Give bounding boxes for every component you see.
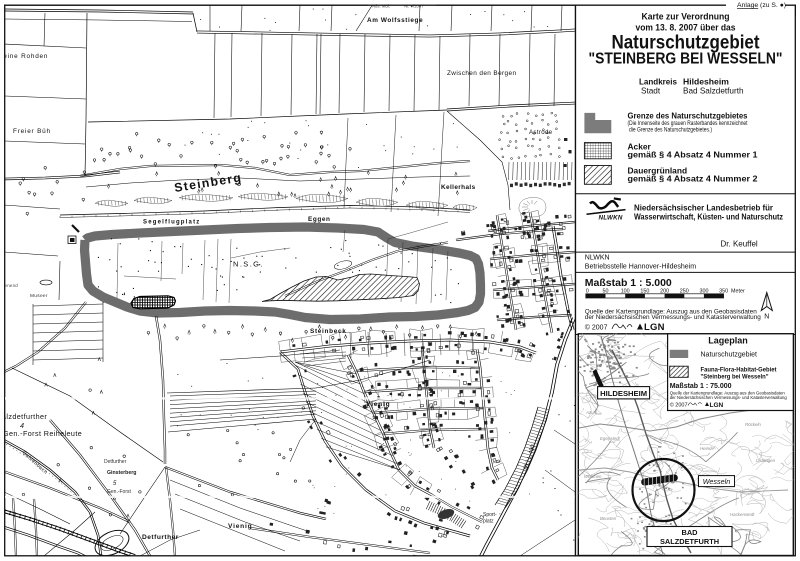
svg-text:Heinde: Heinde (700, 446, 714, 451)
svg-text:Wasserwirtschaft, Küsten- und: Wasserwirtschaft, Küsten- und Naturschut… (634, 211, 783, 221)
svg-text:Listringen: Listringen (756, 458, 776, 463)
svg-text:alzdetfurther: alzdetfurther (2, 412, 47, 421)
svg-text:HILDESHEIM: HILDESHEIM (600, 389, 647, 398)
svg-text:N.S.G.: N.S.G. (233, 260, 264, 269)
svg-text:Segelflugplatz: Segelflugplatz (143, 220, 200, 226)
svg-text:Röckeln: Röckeln (745, 422, 761, 427)
svg-text:Eggen: Eggen (308, 216, 331, 223)
svg-text:Egenstedt: Egenstedt (600, 436, 621, 441)
svg-text:Maßstab 1 : 5.000: Maßstab 1 : 5.000 (585, 277, 672, 289)
svg-text:Freier Büh: Freier Büh (13, 128, 51, 135)
svg-text:Azum: Azum (585, 410, 598, 415)
svg-text:Detfurther: Detfurther (142, 534, 179, 541)
svg-text:"Steinberg bei Wesseln": "Steinberg bei Wesseln" (701, 373, 769, 380)
svg-text:Detfurther: Detfurther (104, 459, 127, 465)
svg-text:platz: platz (483, 519, 494, 525)
svg-text:NLWKN: NLWKN (599, 214, 623, 221)
svg-text:gemäß § 4 Absatz 4 Nummer 2: gemäß § 4 Absatz 4 Nummer 2 (628, 174, 758, 184)
svg-text:BAD: BAD (681, 528, 698, 537)
svg-text:NLWKN: NLWKN (585, 255, 610, 262)
svg-text:Bad Salzdetfurth: Bad Salzdetfurth (683, 87, 744, 96)
svg-text:Nds. MBl.: Nds. MBl. (372, 4, 390, 9)
svg-text:Meter: Meter (731, 288, 745, 294)
svg-text:Karte zur Verordnung: Karte zur Verordnung (642, 12, 730, 22)
svg-text:N: N (764, 314, 769, 321)
svg-text:gemäß § 4 Absatz 4 Nummer 1: gemäß § 4 Absatz 4 Nummer 1 (628, 149, 758, 159)
svg-text:Stadt: Stadt (641, 87, 661, 96)
svg-text:Astrode: Astrode (529, 129, 553, 136)
svg-text:LGN: LGN (644, 322, 665, 333)
svg-text:Steinbeck: Steinbeck (310, 328, 347, 335)
svg-text:Beusten: Beusten (600, 516, 617, 521)
svg-text:Landkreis: Landkreis (639, 76, 677, 86)
svg-text:Grenze des Naturschutzgebietes: Grenze des Naturschutzgebietes (628, 110, 748, 120)
svg-text:Anlage (zu S. ●): Anlage (zu S. ●) (737, 2, 786, 9)
svg-text:Wesseln: Wesseln (703, 477, 730, 486)
svg-text:Ginsterberg: Ginsterberg (107, 470, 136, 476)
svg-text:Hackenstedt: Hackenstedt (730, 512, 755, 517)
svg-text:Vienig: Vienig (228, 523, 252, 530)
svg-text:Gen.-Forst: Gen.-Forst (107, 489, 132, 495)
svg-text:die Grenze des Naturschutzgebi: die Grenze des Naturschutzgebietes.) (629, 127, 712, 134)
svg-text:SALZDETFURTH: SALZDETFURTH (660, 537, 719, 546)
svg-text:leine Rohden: leine Rohden (1, 53, 48, 60)
svg-text:Kellerhals: Kellerhals (441, 184, 476, 191)
svg-text:Nr. ●/2007: Nr. ●/2007 (404, 4, 424, 9)
svg-text:Sport-: Sport- (483, 512, 497, 518)
svg-text:LGN: LGN (710, 402, 724, 409)
svg-text:Hildesheim: Hildesheim (683, 76, 729, 86)
svg-text:Dr. Keuffel: Dr. Keuffel (721, 240, 758, 249)
svg-text:Zwischen den Bergen: Zwischen den Bergen (447, 70, 516, 77)
svg-text:Gen.-Forst Reiheleute: Gen.-Forst Reiheleute (3, 429, 82, 438)
svg-text:"STEINBERG BEI WESSELN": "STEINBERG BEI WESSELN" (589, 51, 783, 68)
svg-text:© 2007: © 2007 (670, 402, 688, 409)
svg-text:Museer: Museer (30, 293, 48, 299)
svg-text:Vienig: Vienig (366, 401, 390, 408)
svg-text:© 2007: © 2007 (585, 324, 608, 332)
svg-text:Naturschutzgebiet: Naturschutzgebiet (701, 352, 757, 359)
svg-text:Maßstab 1 : 75.000: Maßstab 1 : 75.000 (670, 383, 732, 390)
svg-text:Wehmen: Wehmen (584, 474, 602, 479)
svg-text:der Niedersächsischen Vermessu: der Niedersächsischen Vermessungs- und K… (585, 314, 761, 321)
svg-text:Lageplan: Lageplan (708, 336, 748, 346)
svg-text:Am Wolfsstiege: Am Wolfsstiege (367, 17, 423, 24)
svg-text:Betriebsstelle Hannover-Hildes: Betriebsstelle Hannover-Hildesheim (585, 263, 696, 270)
svg-text:der Niedersächsischen Vermessu: der Niedersächsischen Vermessungs- und K… (670, 395, 788, 400)
